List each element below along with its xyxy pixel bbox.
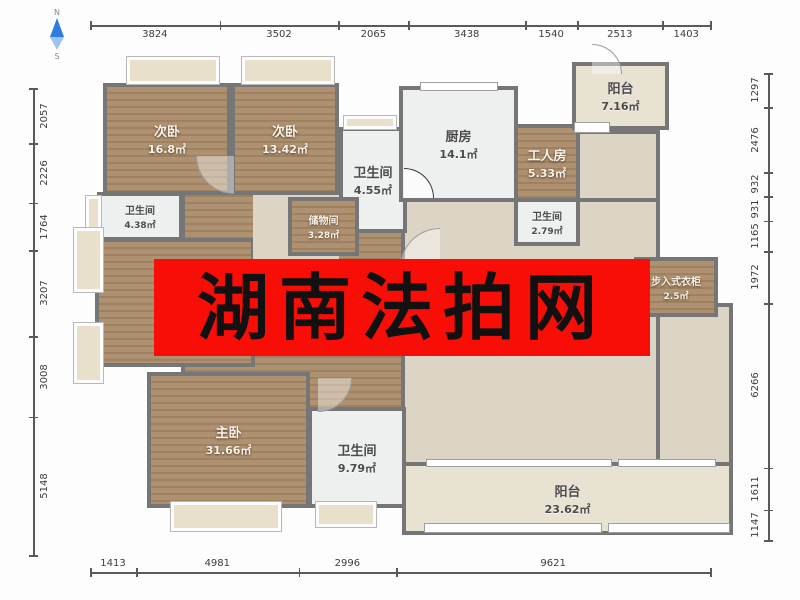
dimension-label: 3502 <box>259 29 299 41</box>
dimension-label: 1764 <box>39 207 51 247</box>
bay-window-left-2 <box>74 323 103 383</box>
room-area-label: 2.79㎡ <box>531 224 562 237</box>
bathroom-window-top <box>344 116 396 129</box>
ruler-tick <box>29 336 38 338</box>
living-room-right-floor <box>656 303 733 467</box>
room-name-label: 阳台 <box>607 78 633 97</box>
bay-window-left-1 <box>74 228 103 292</box>
dimension-label: 3438 <box>447 29 487 41</box>
room-name-label: 阳台 <box>554 481 580 500</box>
dimension-label: 2057 <box>39 96 51 136</box>
room-area-label: 23.62㎡ <box>545 501 591 517</box>
dimension-label: 9621 <box>533 558 573 570</box>
ruler-tick <box>29 250 38 252</box>
ruler-tick <box>220 21 222 30</box>
room-area-label: 13.42㎡ <box>262 141 308 157</box>
dimension-label: 1403 <box>666 29 706 41</box>
bath-bottom-window <box>316 502 376 527</box>
room-bath-right: 卫生间2.79㎡ <box>514 198 580 246</box>
compass-south-label: S <box>54 52 59 62</box>
room-name-label: 厨房 <box>445 126 471 145</box>
ruler-tick <box>764 107 773 109</box>
room-name-label: 工人房 <box>527 145 566 164</box>
ruler-tick <box>764 172 773 174</box>
room-bath-master: 卫生间9.79㎡ <box>308 407 406 508</box>
ruler-line <box>90 25 710 27</box>
balcony-rail-window-2 <box>608 523 730 533</box>
floor-plan: N S 3824350220653438154025131403 1413498… <box>0 0 800 600</box>
room-name-label: 步入式衣柜 <box>651 273 701 288</box>
compass-north-arrow-icon <box>50 18 64 37</box>
dimension-label: 1413 <box>93 558 133 570</box>
ruler-tick <box>710 21 712 30</box>
bay-window-top-2 <box>242 57 334 84</box>
ruler-tick <box>29 203 38 205</box>
balcony-rail-window-1 <box>424 523 602 533</box>
compass-south-arrow-icon <box>50 37 64 50</box>
dimension-label: 3207 <box>39 273 51 313</box>
ruler-tick <box>90 21 92 30</box>
room-area-label: 9.79㎡ <box>338 460 376 476</box>
room-area-label: 3.28㎡ <box>308 228 339 241</box>
ruler-tick <box>662 21 664 30</box>
room-master-bedroom: 主卧31.66㎡ <box>147 372 310 508</box>
dimension-label: 6266 <box>750 365 762 405</box>
dimension-label: 3008 <box>39 357 51 397</box>
room-area-label: 4.38㎡ <box>124 218 155 231</box>
ruler-tick <box>764 540 773 542</box>
room-name-label: 储物间 <box>309 212 339 227</box>
compass: N S <box>42 8 72 68</box>
dimension-label: 1972 <box>750 257 762 297</box>
ruler-tick <box>299 568 301 577</box>
room-name-label: 卫生间 <box>353 162 392 181</box>
room-area-label: 31.66㎡ <box>206 442 252 458</box>
dimension-label: 1611 <box>750 469 762 509</box>
room-area-label: 4.55㎡ <box>354 182 392 198</box>
ruler-tick <box>764 303 773 305</box>
ruler-line <box>33 88 35 555</box>
ruler-tick <box>764 510 773 512</box>
ruler-line <box>90 572 710 574</box>
room-name-label: 次卧 <box>272 121 298 140</box>
ruler-tick <box>338 21 340 30</box>
room-area-label: 2.5㎡ <box>664 289 689 302</box>
dimension-label: 4981 <box>197 558 237 570</box>
room-name-label: 次卧 <box>154 121 180 140</box>
room-bedroom-top-mid: 次卧13.42㎡ <box>231 83 339 195</box>
dimension-label: 2065 <box>353 29 393 41</box>
room-bath-left: 卫生间4.38㎡ <box>97 192 183 241</box>
room-name-label: 卫生间 <box>125 202 155 217</box>
bay-window-top-1 <box>127 57 219 84</box>
living-room-upper-floor <box>576 130 660 204</box>
ruler-line <box>768 73 770 540</box>
dimension-label: 1165 <box>750 216 762 256</box>
ruler-tick <box>525 21 527 30</box>
ruler-tick <box>29 143 38 145</box>
room-area-label: 16.8㎡ <box>148 141 186 157</box>
ruler-tick <box>710 568 712 577</box>
room-storage: 储物间3.28㎡ <box>288 197 359 256</box>
watermark-banner: 湖南法拍网 <box>154 259 650 356</box>
ruler-tick <box>764 251 773 253</box>
master-bay-window <box>171 502 281 531</box>
compass-north-label: N <box>54 8 60 18</box>
kitchen-window <box>420 82 498 91</box>
ruler-tick <box>29 88 38 90</box>
ruler-tick <box>764 196 773 198</box>
ruler-tick <box>90 568 92 577</box>
ruler-tick <box>29 555 38 557</box>
room-area-label: 14.1㎡ <box>439 146 477 162</box>
dimension-label: 2996 <box>327 558 367 570</box>
dimension-label: 2226 <box>39 153 51 193</box>
dimension-label: 5148 <box>39 466 51 506</box>
ruler-tick <box>577 21 579 30</box>
ruler-tick <box>136 568 138 577</box>
top-balcony-window <box>574 122 610 133</box>
dimension-label: 1297 <box>750 70 762 110</box>
dimension-label: 2476 <box>750 120 762 160</box>
balcony-divider-window-2 <box>618 459 716 467</box>
ruler-tick <box>764 468 773 470</box>
room-name-label: 主卧 <box>215 422 241 441</box>
dimension-label: 2513 <box>600 29 640 41</box>
door-arc-top-balcony <box>592 44 622 74</box>
ruler-tick <box>764 73 773 75</box>
dimension-label: 1147 <box>750 505 762 545</box>
balcony-divider-window-1 <box>426 459 612 467</box>
dimension-label: 3824 <box>135 29 175 41</box>
room-name-label: 卫生间 <box>532 208 562 223</box>
ruler-tick <box>408 21 410 30</box>
room-area-label: 5.33㎡ <box>528 165 566 181</box>
room-area-label: 7.16㎡ <box>601 98 639 114</box>
ruler-tick <box>764 221 773 223</box>
room-worker-room: 工人房5.33㎡ <box>514 124 580 202</box>
room-name-label: 卫生间 <box>337 440 376 459</box>
dimension-label: 1540 <box>531 29 571 41</box>
ruler-tick <box>396 568 398 577</box>
ruler-tick <box>29 417 38 419</box>
